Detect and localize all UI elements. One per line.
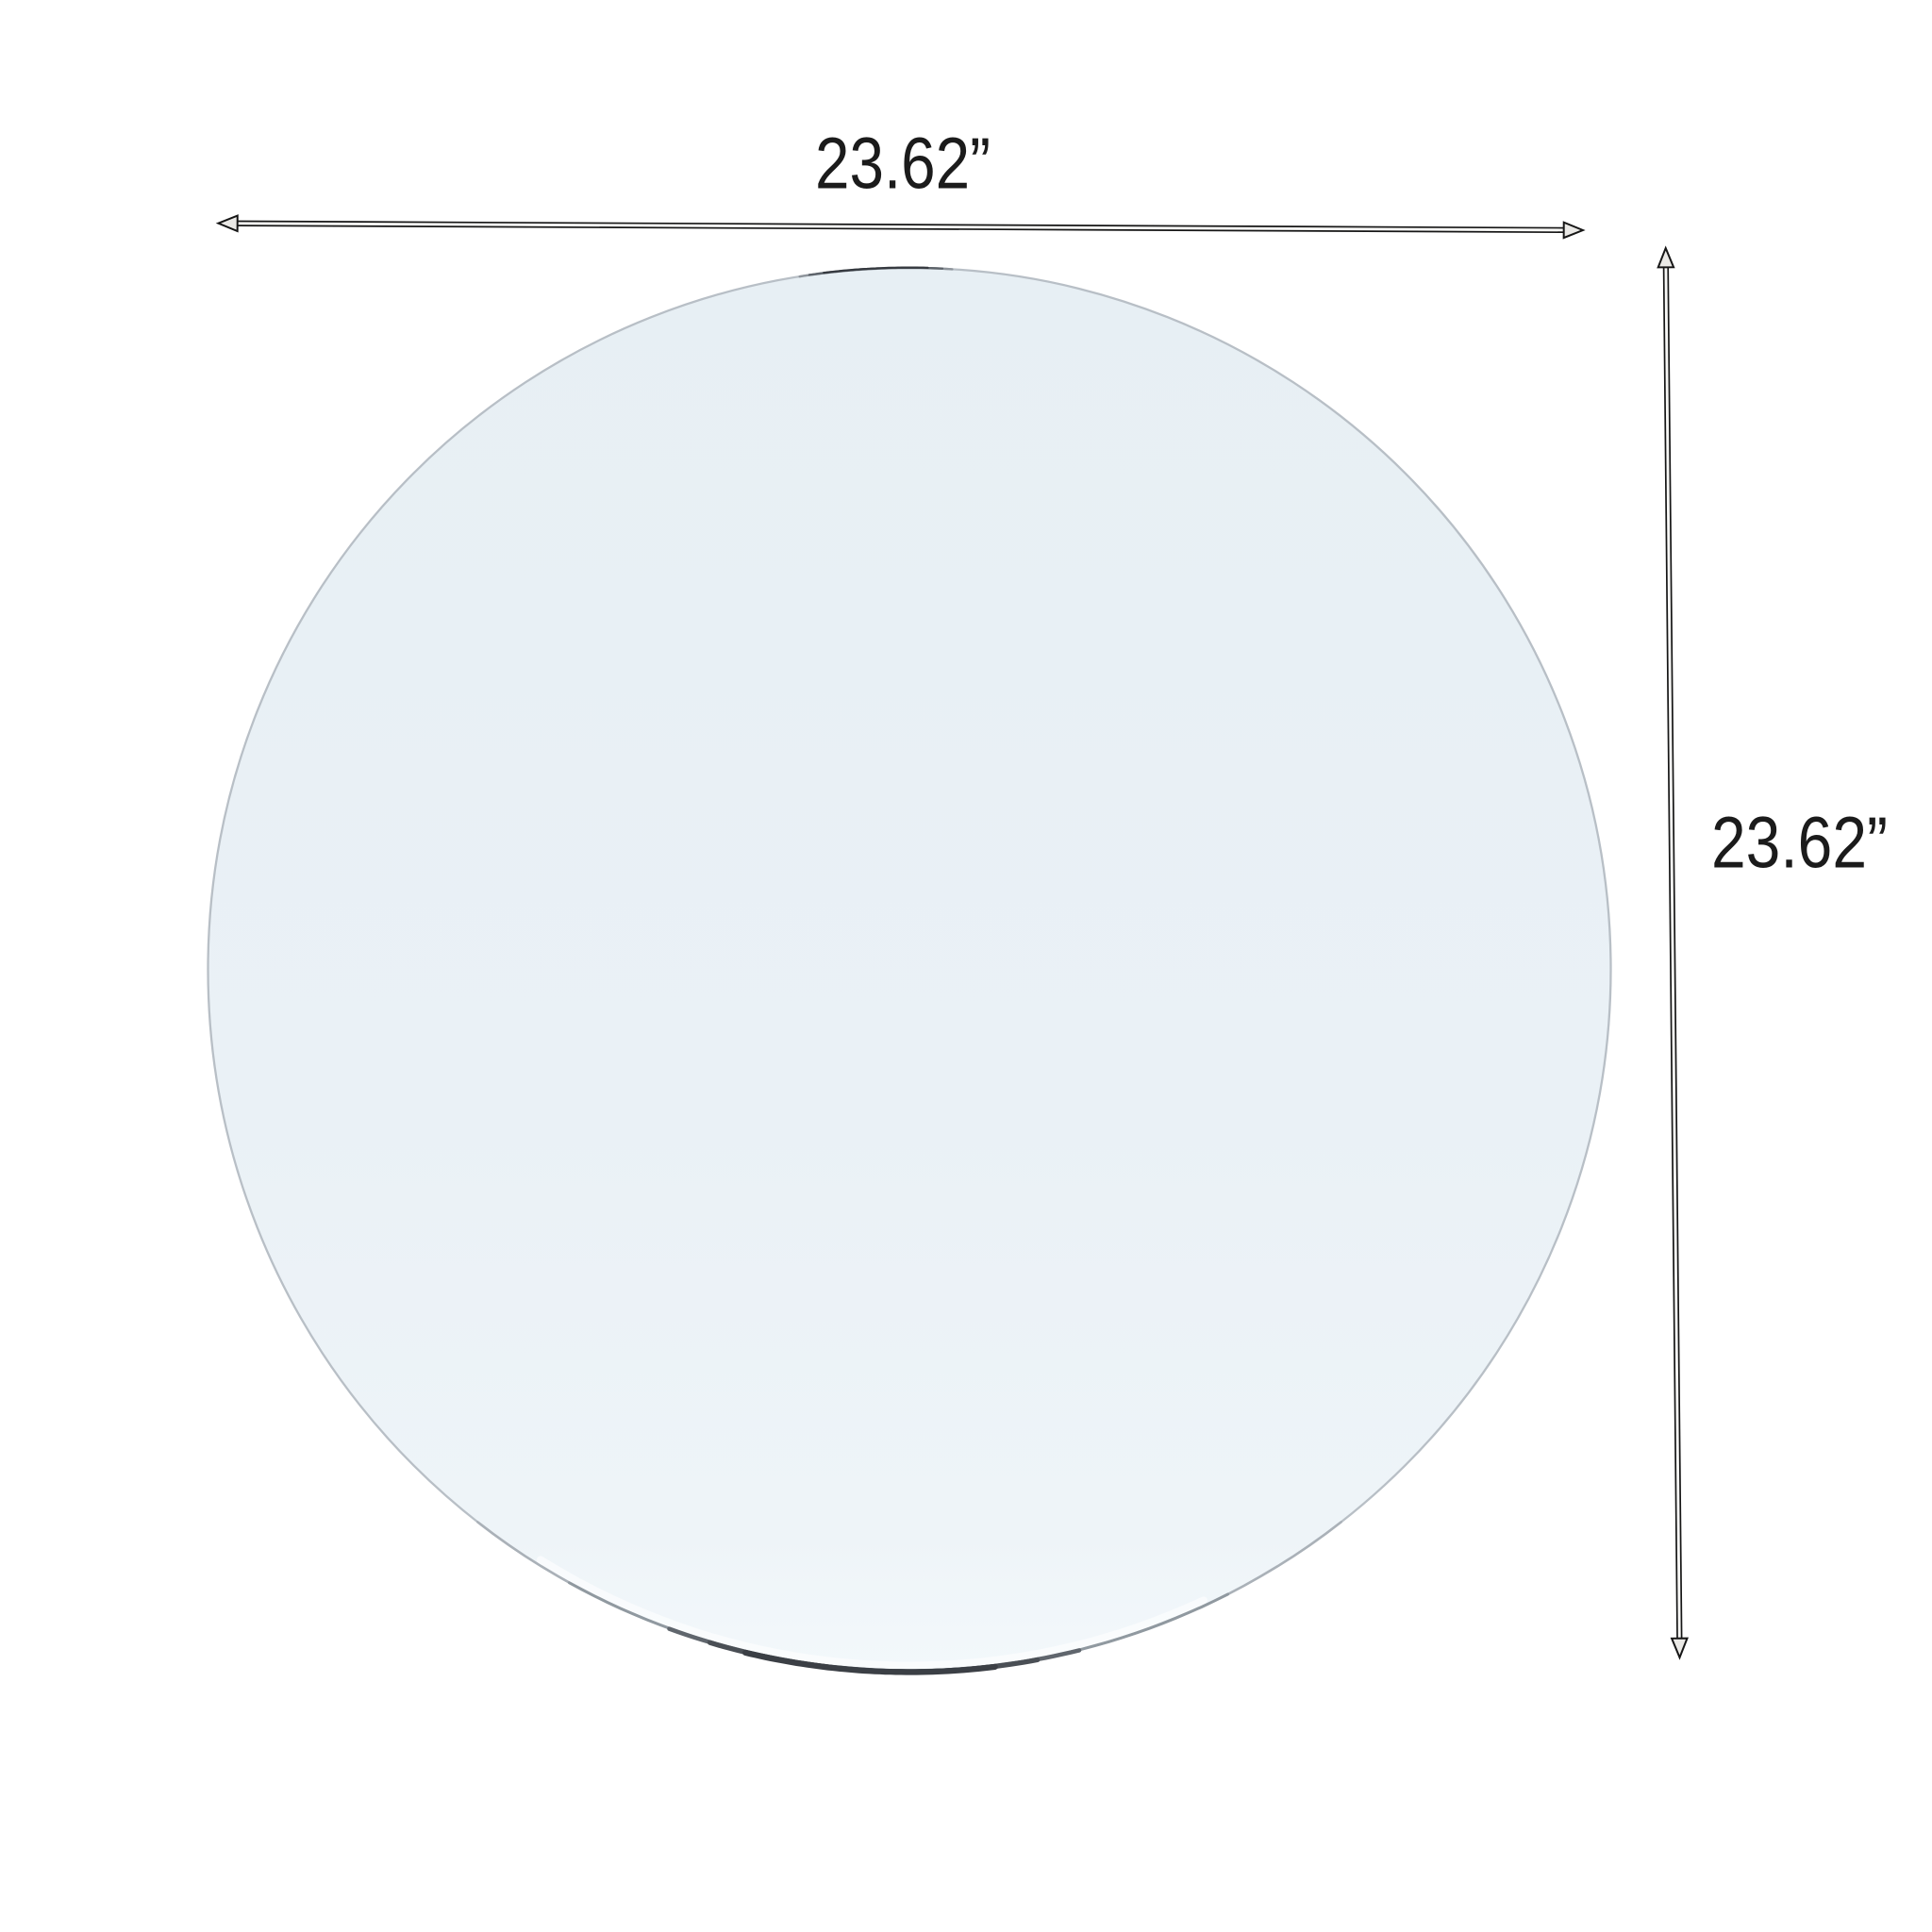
svg-text:23.62”: 23.62” [815, 124, 991, 205]
svg-text:23.62”: 23.62” [1711, 803, 1888, 884]
